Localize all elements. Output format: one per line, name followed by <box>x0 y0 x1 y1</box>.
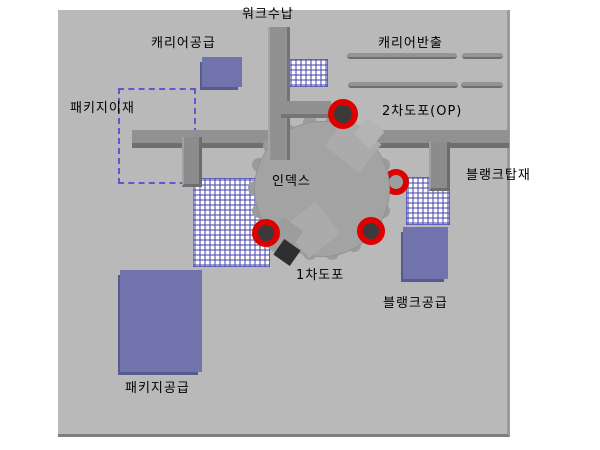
label-carrier-unload: 캐리어반출 <box>378 36 443 51</box>
label-second-coating: 2차도포(OP) <box>382 104 462 119</box>
label-work-storage: 워크수납 <box>242 7 294 22</box>
layout-diagram: 워크수납 캐리어공급 캐리어반출 패키지이재 2차도포(OP) 인덱스 블랭크탑… <box>0 0 600 450</box>
upper-arm-bar <box>281 101 331 118</box>
carrier-unload-rail-2-left <box>348 82 458 88</box>
label-package-supply: 패키지공급 <box>125 381 190 396</box>
blank-supply-unit <box>403 227 448 279</box>
label-package-transfer: 패키지이재 <box>70 101 135 116</box>
carrier-supply-unit <box>202 57 242 87</box>
right-carriage <box>429 142 450 191</box>
label-blank-mount: 블랭크탑재 <box>466 168 531 183</box>
left-carriage <box>182 137 202 187</box>
station-ring-bottom-left <box>252 219 280 247</box>
label-blank-supply: 블랭크공급 <box>383 296 448 311</box>
work-storage-column <box>268 27 290 160</box>
label-carrier-supply: 캐리어공급 <box>151 36 216 51</box>
package-supply-unit <box>120 270 202 372</box>
carrier-unload-rail-1-right <box>462 53 503 59</box>
carrier-unload-rail-2-right <box>461 82 503 88</box>
station-ring-top <box>328 99 358 129</box>
label-first-coating: 1차도포 <box>296 268 344 283</box>
station-ring-bottom-right <box>357 217 385 245</box>
carrier-unload-rail-1-left <box>347 53 457 59</box>
label-index: 인덱스 <box>272 174 311 189</box>
tray-grid-top <box>289 59 328 87</box>
